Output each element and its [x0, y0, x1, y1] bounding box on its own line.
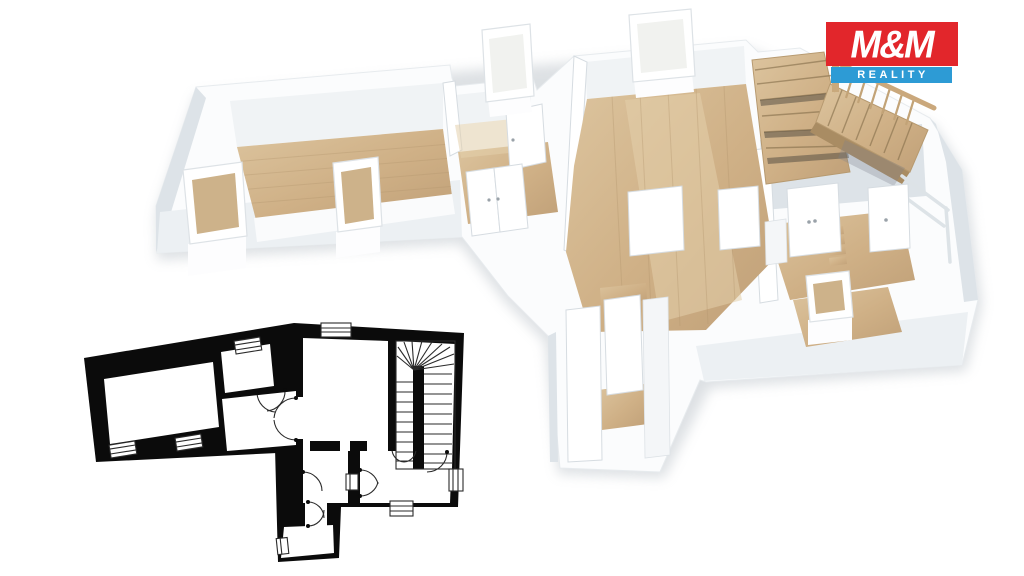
window-front-left [183, 162, 247, 276]
floorplan-image [0, 0, 1024, 576]
window-front-left-2 [333, 157, 382, 258]
brand-logo-mark: M&M [826, 22, 958, 66]
window-front-right [806, 271, 853, 345]
brand-logo-title: M&M [847, 25, 936, 64]
window-back-small-room [482, 24, 534, 117]
floorplan-2d [84, 323, 464, 562]
window-back-hall [629, 9, 695, 98]
brand-logo: M&M REALITY [826, 22, 958, 83]
brand-logo-subtitle: REALITY [854, 70, 929, 81]
floorplan-canvas [0, 0, 1024, 576]
brand-logo-banner: REALITY [831, 67, 952, 83]
